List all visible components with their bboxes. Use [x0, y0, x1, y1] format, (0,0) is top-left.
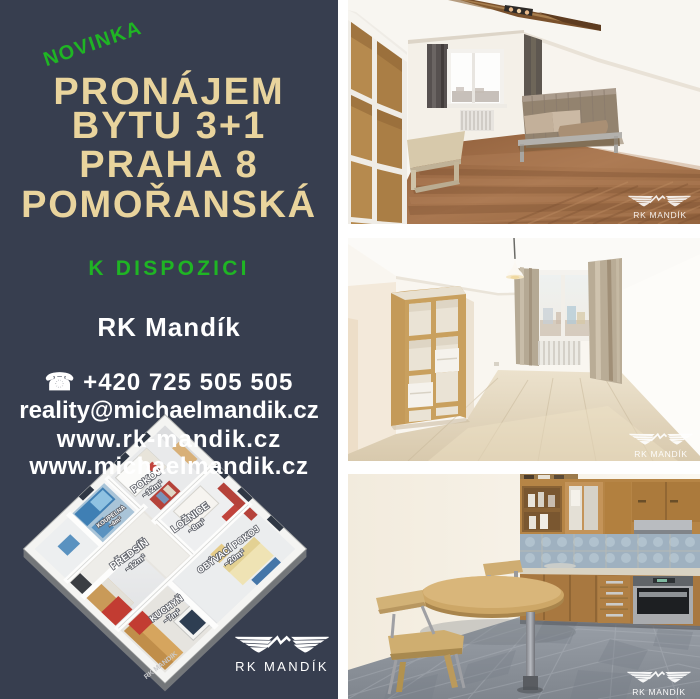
- svg-text:RK MANDÍK: RK MANDÍK: [632, 687, 686, 697]
- svg-text:RK MANDÍK: RK MANDÍK: [634, 449, 688, 459]
- svg-text:RK MANDÍK: RK MANDÍK: [633, 210, 687, 220]
